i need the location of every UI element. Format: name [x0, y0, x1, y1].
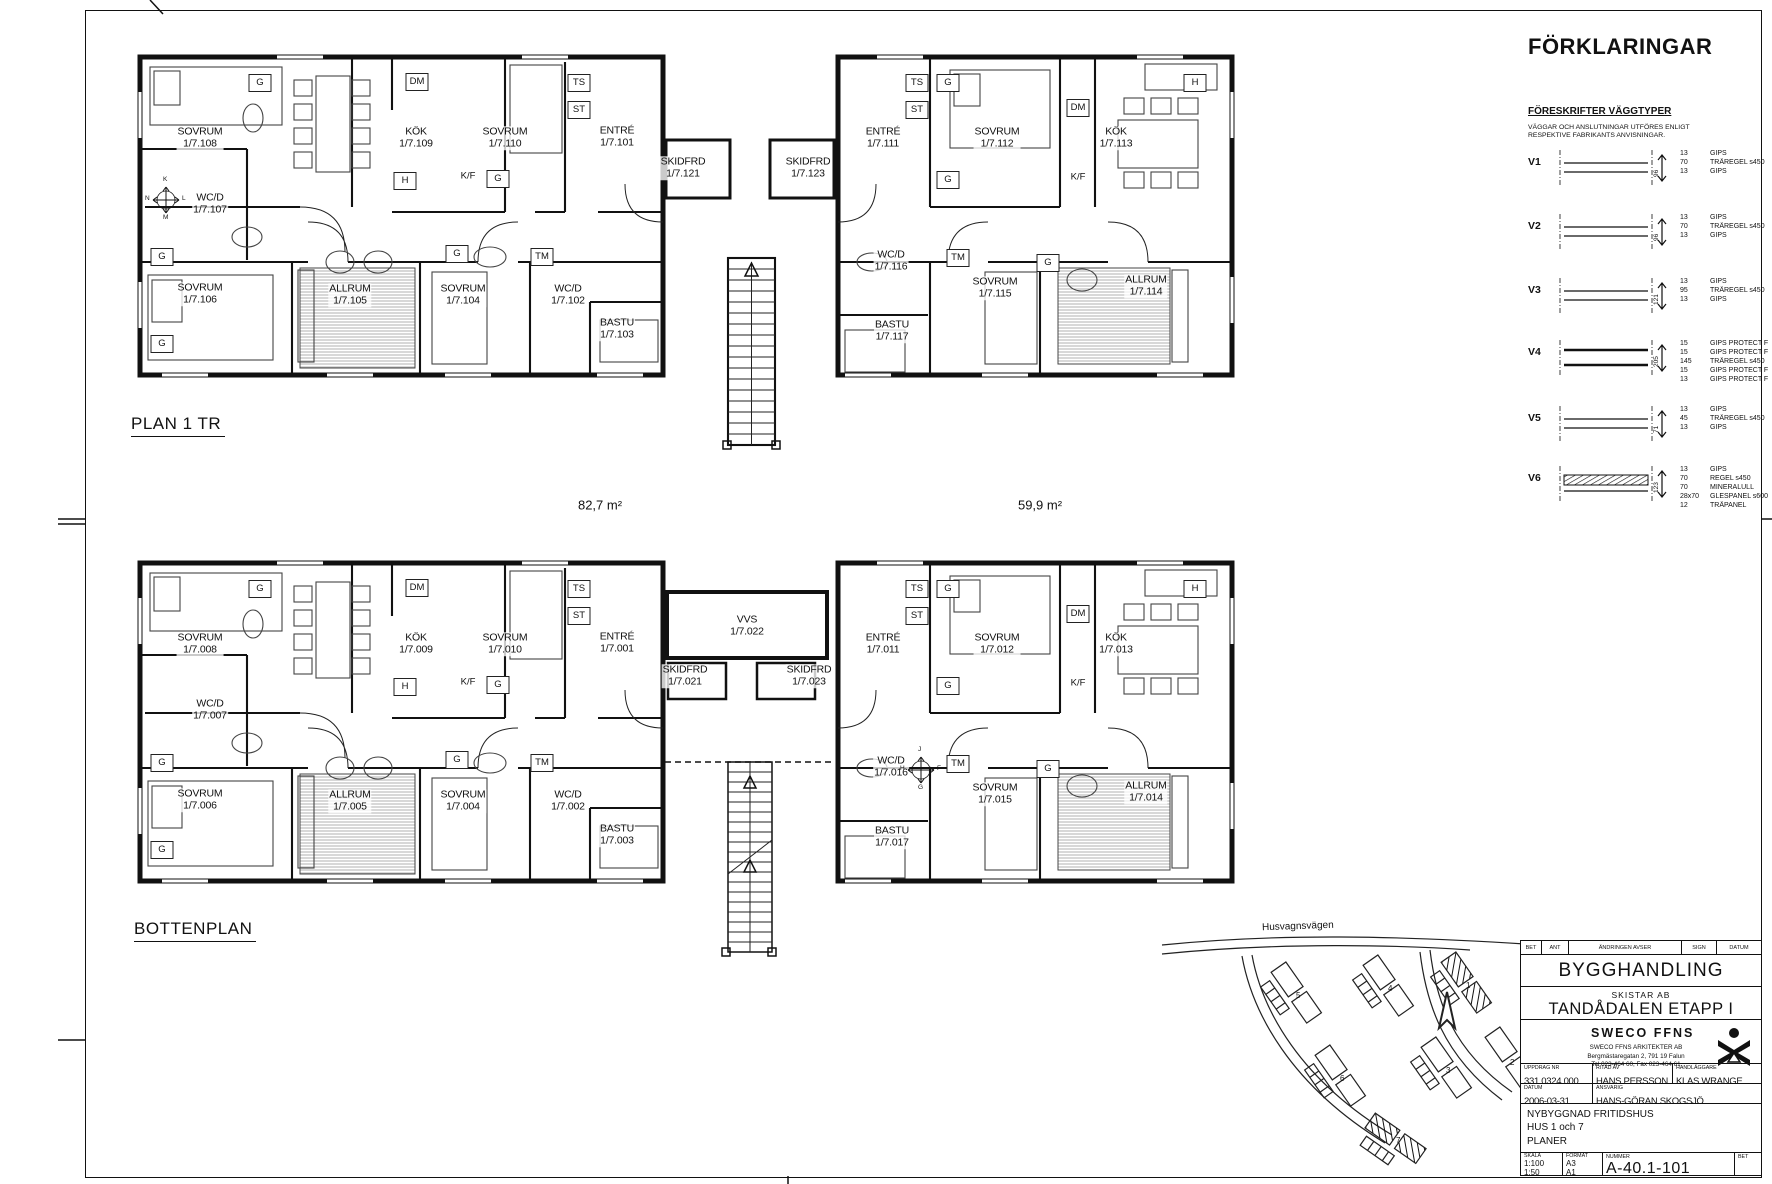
room-name: SOVRUM: [178, 281, 223, 293]
fixture-dm: DM: [1067, 99, 1090, 117]
fields-row-2: DATUM 2006-03-31 ANSVARIG HANS-GÖRAN SKO…: [1521, 1084, 1761, 1104]
svg-text:205: 205: [1653, 356, 1660, 367]
fixture-ts: TS: [906, 580, 929, 598]
room-label: SOVRUM1/7.108: [177, 126, 224, 150]
room-label: SKIDFRD1/7.021: [662, 664, 709, 688]
room-name: SOVRUM: [441, 788, 486, 800]
wall-layer: 70TRÄREGEL s450: [1680, 158, 1765, 167]
wall-layer: 45TRÄREGEL s450: [1680, 414, 1765, 423]
fixture-g: G: [151, 248, 174, 266]
firm-cell: SWECO FFNS SWECO FFNS ARKITEKTER AB Berg…: [1521, 1020, 1761, 1063]
fixture-ts: TS: [568, 74, 591, 92]
room-name: SOVRUM: [975, 631, 1020, 643]
direction-cross-icon: JHFG: [901, 750, 941, 790]
room-number: 1/7.103: [600, 328, 634, 340]
drawing-sheet: 5416327 PLAN 1 TRSOVRUM1/7.108KÖK1/7.109…: [0, 0, 1772, 1184]
wall-type-layers: 13GIPS70REGEL s45070MINERALULL28x70GLESP…: [1680, 464, 1768, 510]
project-name: TANDÅDALEN ETAPP I: [1521, 1000, 1761, 1018]
room-number: 1/7.014: [1129, 791, 1163, 803]
area-label-left: 82,7 m²: [578, 498, 622, 513]
wall-type-v5: V57113GIPS45TRÄREGEL s45013GIPS: [1528, 404, 1765, 449]
fixture-st: ST: [568, 101, 591, 119]
format-values: A3A1: [1566, 1159, 1576, 1175]
site-house-cluster: [1257, 962, 1321, 1033]
room-name: ALLRUM: [1125, 273, 1166, 285]
bottenplan-central-stair: [665, 592, 835, 956]
fixture-g: G: [151, 841, 174, 859]
room-number: 1/7.006: [183, 799, 217, 811]
scale-number-row: SKALA 1:1001:50 FORMAT A3A1 NUMMER A-40.…: [1521, 1153, 1761, 1175]
room-label: SOVRUM1/7.008: [177, 632, 224, 656]
room-label: WC/D1/7.102: [550, 283, 586, 307]
client-name: SKISTAR AB: [1521, 987, 1761, 1000]
room-name: VVS: [737, 613, 757, 625]
room-label: KÖK1/7.009: [398, 632, 434, 656]
room-number: 1/7.010: [488, 643, 522, 655]
room-number: 1/7.116: [875, 260, 908, 272]
fixture-dm: DM: [1067, 605, 1090, 623]
site-house-cluster: [1407, 1037, 1471, 1108]
site-house-number: 2: [1510, 1058, 1515, 1067]
room-label: SOVRUM1/7.110: [482, 126, 529, 150]
room-name: WC/D: [554, 788, 581, 800]
legend-subtitle: FÖRESKRIFTER VÄGGTYPER: [1528, 106, 1671, 117]
wall-layer: 13GIPS: [1680, 213, 1765, 222]
room-number: 1/7.015: [978, 793, 1012, 805]
wall-layer: 13GIPS: [1680, 231, 1765, 240]
room-number: 1/7.101: [600, 136, 634, 148]
drawing-number: A-40.1-101: [1606, 1157, 1690, 1175]
wall-type-glyph: 205: [1554, 338, 1674, 383]
wall-layer: 15GIPS PROTECT F: [1680, 348, 1768, 357]
fixture-h: H: [394, 678, 417, 696]
wall-type-v4: V420515GIPS PROTECT F15GIPS PROTECT F145…: [1528, 338, 1768, 384]
room-number: 1/7.007: [193, 709, 227, 721]
drawing-description: NYBYGGNAD FRITIDSHUSHUS 1 och 7PLANER: [1521, 1104, 1761, 1154]
site-house-number: 4: [1388, 984, 1393, 993]
room-number: 1/7.005: [333, 800, 367, 812]
room-number: 1/7.110: [489, 137, 522, 149]
fixture-g: G: [937, 580, 960, 598]
wall-type-id: V3: [1528, 276, 1554, 296]
svg-text:96: 96: [1653, 169, 1660, 177]
room-label: SOVRUM1/7.015: [972, 782, 1019, 806]
room-label: ENTRÉ1/7.011: [865, 632, 902, 656]
room-number: 1/7.105: [333, 294, 367, 306]
site-house-number: 3: [1446, 1066, 1451, 1075]
room-label: SOVRUM1/7.112: [974, 126, 1021, 150]
svg-text:121: 121: [1653, 294, 1660, 305]
fixture-g: G: [937, 171, 960, 189]
site-house-cluster: [1349, 955, 1413, 1026]
room-label: BASTU1/7.017: [874, 825, 910, 849]
room-label: ALLRUM1/7.005: [328, 789, 371, 813]
site-house-number: 6: [1340, 1074, 1345, 1083]
fixture-g: G: [446, 245, 469, 263]
fixture-dm: DM: [406, 73, 429, 91]
wall-layer: 28x70GLESPANEL s600: [1680, 492, 1768, 501]
room-name: WC/D: [877, 248, 904, 260]
fixture-h: H: [394, 172, 417, 190]
room-number: 1/7.009: [399, 643, 433, 655]
room-number: 1/7.114: [1130, 285, 1163, 297]
room-name: ALLRUM: [329, 282, 370, 294]
room-label: SOVRUM1/7.104: [440, 283, 487, 307]
fixture-st: ST: [568, 607, 591, 625]
wall-layer: 70REGEL s450: [1680, 474, 1768, 483]
rev-col-ändringen avser: ÄNDRINGEN AVSER: [1569, 941, 1682, 954]
fixture-k-f: K/F: [461, 677, 476, 688]
fixture-h: H: [1184, 74, 1207, 92]
room-label: BASTU1/7.117: [874, 319, 910, 343]
wall-type-layers: 13GIPS45TRÄREGEL s45013GIPS: [1680, 404, 1765, 432]
room-number: 1/7.011: [867, 643, 900, 655]
room-label: ENTRÉ1/7.111: [865, 126, 902, 150]
room-name: BASTU: [875, 824, 909, 836]
fields-row-1: UPPDRAG NR 331 0324.000 RITAD AV HANS PE…: [1521, 1064, 1761, 1084]
fixture-g: G: [487, 676, 510, 694]
wall-layer: 13GIPS: [1680, 295, 1765, 304]
plan1-central-stair: [666, 140, 834, 449]
wall-type-glyph: 96: [1554, 148, 1674, 193]
room-number: 1/7.107: [193, 203, 227, 215]
room-label: SKIDFRD1/7.023: [786, 664, 833, 688]
room-label: SKIDFRD1/7.123: [785, 156, 832, 180]
room-name: KÖK: [1105, 125, 1127, 137]
fixture-ts: TS: [568, 580, 591, 598]
wall-type-glyph: 96: [1554, 212, 1674, 257]
room-label: ALLRUM1/7.014: [1124, 780, 1167, 804]
room-name: ALLRUM: [1125, 779, 1166, 791]
room-name: ENTRÉ: [866, 631, 901, 643]
wall-layer: 13GIPS: [1680, 465, 1768, 474]
rev-col-sign: SIGN: [1682, 941, 1717, 954]
room-label: KÖK1/7.013: [1098, 632, 1134, 656]
legend-title: FÖRKLARINGAR: [1528, 34, 1712, 60]
title-block: BETANTÄNDRINGEN AVSERSIGNDATUM BYGGHANDL…: [1520, 940, 1762, 1176]
room-number: 1/7.109: [399, 137, 433, 149]
room-name: WC/D: [554, 282, 581, 294]
site-house-number: 7: [1396, 1136, 1401, 1145]
wall-type-glyph: 123: [1554, 464, 1674, 509]
room-label: BASTU1/7.103: [599, 317, 635, 341]
svg-text:96: 96: [1653, 233, 1660, 241]
north-arrow-icon: [1439, 992, 1455, 1028]
room-label: ALLRUM1/7.114: [1124, 274, 1167, 298]
room-name: SOVRUM: [178, 631, 223, 643]
room-number: 1/7.004: [446, 800, 480, 812]
room-name: ENTRÉ: [866, 125, 901, 137]
wall-type-layers: 13GIPS70TRÄREGEL s45013GIPS: [1680, 212, 1765, 240]
site-house-cluster-hus7: [1355, 1113, 1426, 1177]
description-line: HUS 1 och 7: [1527, 1121, 1755, 1135]
wall-layer: 13GIPS: [1680, 149, 1765, 158]
fixture-g: G: [1037, 760, 1060, 778]
room-number: 1/7.017: [875, 836, 909, 848]
ritad-av: HANS PERSSON: [1596, 1076, 1668, 1083]
room-label: SOVRUM1/7.006: [177, 788, 224, 812]
room-name: WC/D: [196, 191, 223, 203]
room-name: SOVRUM: [483, 631, 528, 643]
fixture-tm: TM: [531, 754, 554, 772]
room-name: SOVRUM: [441, 282, 486, 294]
project-cell: SKISTAR AB TANDÅDALEN ETAPP I: [1521, 987, 1761, 1020]
fixture-g: G: [249, 580, 272, 598]
wall-layer: 70MINERALULL: [1680, 483, 1768, 492]
wall-layer: 13GIPS PROTECT F: [1680, 375, 1768, 384]
room-number: 1/7.104: [446, 294, 480, 306]
room-label: KÖK1/7.113: [1099, 126, 1134, 150]
fixture-h: H: [1184, 580, 1207, 598]
fixture-tm: TM: [531, 248, 554, 266]
room-name: KÖK: [1105, 631, 1127, 643]
fixture-st: ST: [906, 101, 929, 119]
room-name: SKIDFRD: [787, 663, 832, 675]
wall-layer: 13GIPS: [1680, 405, 1765, 414]
room-number: 1/7.022: [730, 625, 764, 637]
wall-type-v3: V312113GIPS95TRÄREGEL s45013GIPS: [1528, 276, 1765, 321]
fixture-dm: DM: [406, 579, 429, 597]
wall-type-id: V4: [1528, 338, 1554, 358]
svg-text:71: 71: [1653, 425, 1660, 433]
plan-title-bottenplan: BOTTENPLAN: [134, 919, 256, 942]
room-number: 1/7.112: [981, 137, 1014, 149]
fixture-g: G: [1037, 254, 1060, 272]
room-label: SOVRUM1/7.004: [440, 789, 487, 813]
description-line: PLANER: [1527, 1135, 1755, 1149]
wall-type-id: V6: [1528, 464, 1554, 484]
wall-type-v1: V19613GIPS70TRÄREGEL s45013GIPS: [1528, 148, 1765, 193]
svg-text:123: 123: [1653, 482, 1660, 493]
plan-title-plan1: PLAN 1 TR: [131, 414, 225, 437]
area-label-right: 59,9 m²: [1018, 498, 1062, 513]
room-name: SOVRUM: [483, 125, 528, 137]
room-name: KÖK: [405, 125, 427, 137]
room-name: ENTRÉ: [600, 124, 635, 136]
room-number: 1/7.106: [183, 293, 217, 305]
room-number: 1/7.111: [867, 137, 899, 149]
fixture-g: G: [937, 677, 960, 695]
room-number: 1/7.023: [792, 675, 826, 687]
room-name: BASTU: [600, 316, 634, 328]
room-name: WC/D: [196, 697, 223, 709]
wall-type-id: V2: [1528, 212, 1554, 232]
fixture-k-f: K/F: [1071, 172, 1086, 183]
wall-type-glyph: 71: [1554, 404, 1674, 449]
fixture-g: G: [151, 335, 174, 353]
wall-layer: 95TRÄREGEL s450: [1680, 286, 1765, 295]
uppdrag-nr: 331 0324.000: [1524, 1076, 1579, 1083]
rev-col-datum: DATUM: [1717, 941, 1761, 954]
wall-type-layers: 13GIPS95TRÄREGEL s45013GIPS: [1680, 276, 1765, 304]
fixture-k-f: K/F: [1071, 678, 1086, 689]
room-number: 1/7.013: [1099, 643, 1133, 655]
room-number: 1/7.102: [551, 294, 585, 306]
wall-layer: 13GIPS: [1680, 423, 1765, 432]
rev-col-ant: ANT: [1542, 941, 1569, 954]
wall-layer: 145TRÄREGEL s450: [1680, 357, 1768, 366]
room-label: SOVRUM1/7.115: [972, 276, 1019, 300]
fixture-g: G: [487, 170, 510, 188]
fixture-g: G: [446, 751, 469, 769]
wall-type-layers: 15GIPS PROTECT F15GIPS PROTECT F145TRÄRE…: [1680, 338, 1768, 384]
room-number: 1/7.117: [876, 330, 909, 342]
fixture-k-f: K/F: [461, 171, 476, 182]
rev-col-bet: BET: [1521, 941, 1542, 954]
room-number: 1/7.121: [666, 167, 700, 179]
room-label: ENTRÉ1/7.001: [599, 631, 636, 655]
room-name: SOVRUM: [975, 125, 1020, 137]
wall-layer: 15GIPS PROTECT F: [1680, 366, 1768, 375]
fixture-g: G: [937, 74, 960, 92]
room-name: SOVRUM: [973, 781, 1018, 793]
wall-layer: 13GIPS: [1680, 167, 1765, 176]
room-label: SOVRUM1/7.106: [177, 282, 224, 306]
datum: 2006-03-31: [1524, 1096, 1570, 1103]
room-number: 1/7.003: [600, 834, 634, 846]
wall-layer: 13GIPS: [1680, 277, 1765, 286]
wall-layer: 70TRÄREGEL s450: [1680, 222, 1765, 231]
site-house-number: 1: [1466, 981, 1471, 990]
room-number: 1/7.008: [183, 643, 217, 655]
document-status: BYGGHANDLING: [1521, 955, 1761, 987]
ansvarig: HANS-GÖRAN SKOGSJÖ: [1596, 1096, 1704, 1103]
room-name: BASTU: [600, 822, 634, 834]
room-label: ENTRÉ1/7.101: [599, 125, 636, 149]
firm-name: SWECO FFNS: [1591, 1026, 1694, 1040]
scale-values: 1:1001:50: [1524, 1159, 1544, 1175]
room-name: ALLRUM: [329, 788, 370, 800]
site-map: 5416327: [1162, 937, 1535, 1177]
description-line: NYBYGGNAD FRITIDSHUS: [1527, 1108, 1755, 1122]
room-name: SKIDFRD: [663, 663, 708, 675]
room-name: SOVRUM: [178, 787, 223, 799]
room-number: 1/7.001: [600, 642, 634, 654]
site-house-number: 5: [1296, 991, 1301, 1000]
room-number: 1/7.021: [668, 675, 702, 687]
direction-cross-icon: KNLM: [146, 180, 186, 220]
room-number: 1/7.108: [183, 137, 217, 149]
room-label: KÖK1/7.109: [398, 126, 434, 150]
room-label: SKIDFRD1/7.121: [660, 156, 707, 180]
room-name: SKIDFRD: [661, 155, 706, 167]
room-label: WC/D1/7.116: [874, 249, 909, 273]
room-number: 1/7.002: [551, 800, 585, 812]
wall-type-id: V5: [1528, 404, 1554, 424]
room-label: VVS1/7.022: [729, 614, 765, 638]
room-label: BASTU1/7.003: [599, 823, 635, 847]
room-name: KÖK: [405, 631, 427, 643]
fixture-st: ST: [906, 607, 929, 625]
room-label: WC/D1/7.002: [550, 789, 586, 813]
room-name: SOVRUM: [973, 275, 1018, 287]
room-number: 1/7.012: [980, 643, 1014, 655]
room-label: SOVRUM1/7.012: [974, 632, 1021, 656]
wall-layer: 12TRÄPANEL: [1680, 501, 1768, 510]
fixture-g: G: [249, 74, 272, 92]
room-label: SOVRUM1/7.010: [482, 632, 529, 656]
fixture-tm: TM: [947, 755, 970, 773]
wall-type-layers: 13GIPS70TRÄREGEL s45013GIPS: [1680, 148, 1765, 176]
fixture-tm: TM: [947, 249, 970, 267]
room-name: SOVRUM: [178, 125, 223, 137]
fixture-ts: TS: [906, 74, 929, 92]
wall-type-id: V1: [1528, 148, 1554, 168]
revision-header-row: BETANTÄNDRINGEN AVSERSIGNDATUM: [1521, 941, 1761, 955]
room-name: SKIDFRD: [786, 155, 831, 167]
room-name: BASTU: [875, 318, 909, 330]
wall-type-v6: V612313GIPS70REGEL s45070MINERALULL28x70…: [1528, 464, 1768, 510]
wall-type-v2: V29613GIPS70TRÄREGEL s45013GIPS: [1528, 212, 1765, 257]
room-label: ALLRUM1/7.105: [328, 283, 371, 307]
legend-note: VÄGGAR OCH ANSLUTNINGAR UTFÖRES ENLIGT R…: [1528, 124, 1718, 141]
room-number: 1/7.113: [1100, 137, 1133, 149]
wall-type-glyph: 121: [1554, 276, 1674, 321]
room-label: WC/D1/7.007: [192, 698, 228, 722]
room-number: 1/7.115: [979, 287, 1012, 299]
room-label: WC/D1/7.107: [192, 192, 228, 216]
handlaggare: KLAS WRANGE: [1676, 1076, 1742, 1083]
room-name: ENTRÉ: [600, 630, 635, 642]
wall-layer: 15GIPS PROTECT F: [1680, 339, 1768, 348]
room-number: 1/7.123: [791, 167, 825, 179]
fixture-g: G: [151, 754, 174, 772]
